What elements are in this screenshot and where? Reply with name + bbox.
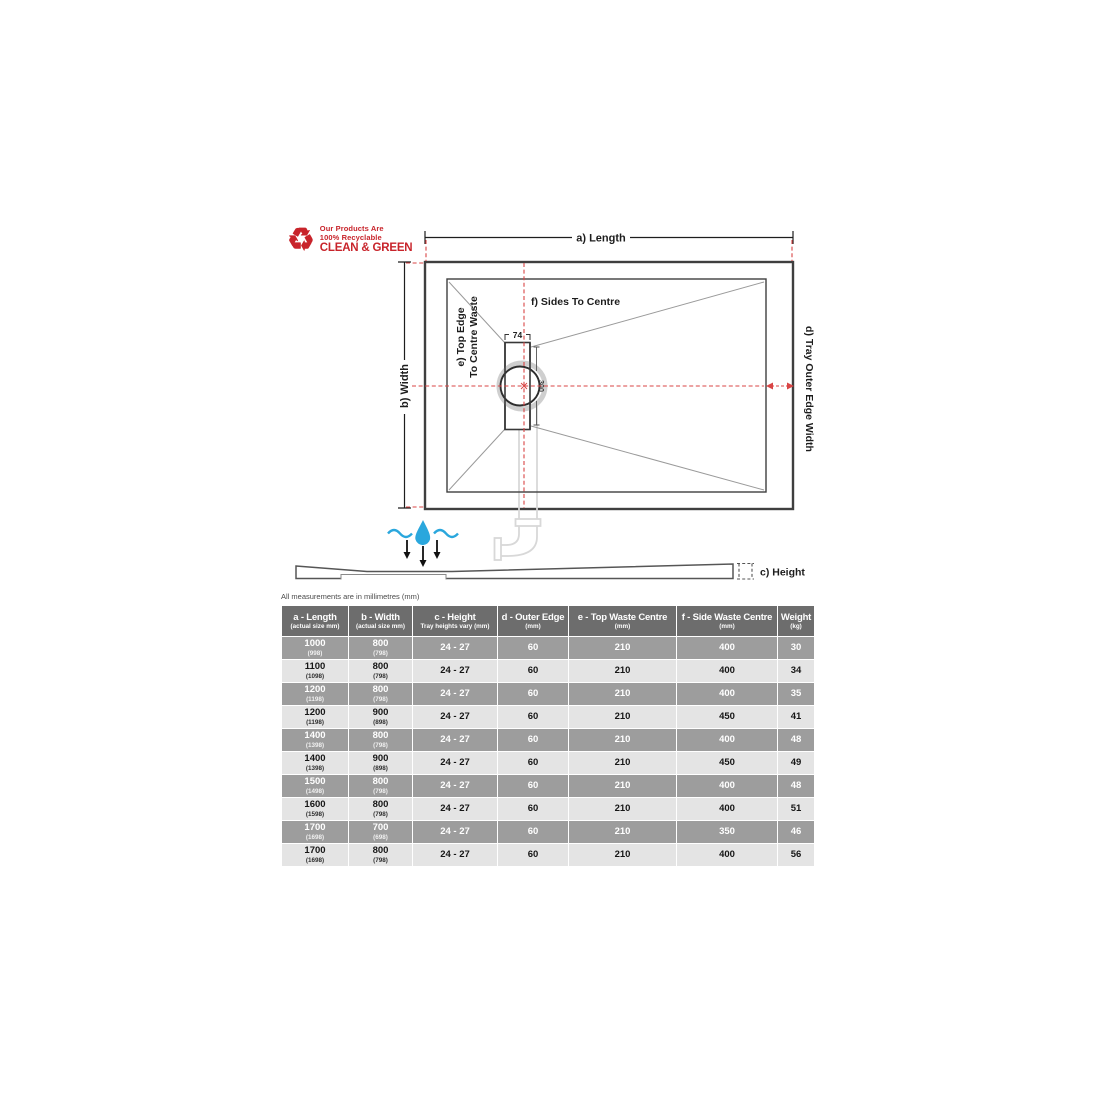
table-cell: 60 [498,844,569,867]
cell-value: 210 [569,735,676,746]
table-cell: 210 [569,683,677,706]
side-profile-view: c) Height [296,564,805,580]
cell-value: 450 [677,712,777,723]
column-header: d - Outer Edge(mm) [498,606,569,637]
cell-actual-size: (798) [349,673,412,681]
cell-value: 48 [778,735,814,746]
cell-value: 1100 [282,662,348,673]
cell-actual-size: (1498) [282,788,348,796]
column-header: c - HeightTray heights vary (mm) [413,606,498,637]
table-cell: 48 [778,775,815,798]
table-cell: 210 [569,706,677,729]
table-cell: 210 [569,729,677,752]
cell-value: 60 [498,850,568,861]
cell-value: 24 - 27 [413,758,497,769]
cell-actual-size: (1598) [282,811,348,819]
cell-value: 1700 [282,846,348,857]
table-cell: 24 - 27 [413,637,498,660]
cell-value: 24 - 27 [413,735,497,746]
cell-value: 60 [498,666,568,677]
table-cell: 1100(1098) [282,660,349,683]
cell-actual-size: (1698) [282,834,348,842]
table-cell: 60 [498,821,569,844]
cell-value: 210 [569,689,676,700]
cell-value: 210 [569,850,676,861]
cell-value: 210 [569,758,676,769]
column-header-sub: (mm) [569,623,676,631]
cell-actual-size: (898) [349,719,412,727]
cell-value: 210 [569,666,676,677]
height-bracket [737,564,754,580]
cell-actual-size: (798) [349,742,412,750]
table-cell: 1200(1198) [282,683,349,706]
table-cell: 48 [778,729,815,752]
cell-value: 24 - 27 [413,804,497,815]
column-header-label: b - Width [349,612,412,623]
wave-right-icon [434,530,458,537]
tray-technical-diagram: 74 300 a) Length b) Width [0,0,1100,600]
spec-sheet-page: ♻ Our Products Are 100% Recyclable CLEAN… [0,0,1100,1100]
table-cell: 1400(1398) [282,729,349,752]
table-cell: 450 [677,706,778,729]
column-header-sub: (actual size mm) [349,623,412,631]
cell-value: 24 - 27 [413,712,497,723]
table-row: 1700(1698)800(798)24 - 276021040056 [282,844,815,867]
cell-value: 60 [498,735,568,746]
cell-value: 49 [778,758,814,769]
cell-value: 51 [778,804,814,815]
table-cell: 1200(1198) [282,706,349,729]
table-cell: 900(898) [349,752,413,775]
cell-value: 400 [677,735,777,746]
cell-actual-size: (798) [349,788,412,796]
cell-value: 24 - 27 [413,850,497,861]
cell-actual-size: (798) [349,811,412,819]
table-cell: 210 [569,752,677,775]
cell-value: 400 [677,850,777,861]
cell-actual-size: (898) [349,765,412,773]
cell-actual-size: (1398) [282,742,348,750]
table-cell: 60 [498,798,569,821]
table-cell: 46 [778,821,815,844]
table-cell: 24 - 27 [413,729,498,752]
table-cell: 400 [677,844,778,867]
table-row: 1400(1398)800(798)24 - 276021040048 [282,729,815,752]
table-cell: 34 [778,660,815,683]
table-cell: 450 [677,752,778,775]
length-label: a) Length [576,233,626,245]
cell-actual-size: (798) [349,650,412,658]
cell-value: 60 [498,712,568,723]
table-cell: 24 - 27 [413,798,498,821]
cell-value: 400 [677,666,777,677]
spec-table-header-row: a - Length(actual size mm)b - Width(actu… [282,606,815,637]
table-cell: 24 - 27 [413,683,498,706]
cell-value: 900 [349,708,412,719]
table-cell: 400 [677,683,778,706]
cell-value: 24 - 27 [413,643,497,654]
cell-actual-size: (1098) [282,673,348,681]
cell-value: 60 [498,827,568,838]
table-cell: 800(798) [349,683,413,706]
table-cell: 35 [778,683,815,706]
cell-value: 48 [778,781,814,792]
column-header-sub: (mm) [677,623,777,631]
table-row: 1500(1498)800(798)24 - 276021040048 [282,775,815,798]
dimension-width: b) Width [398,262,411,508]
spec-table-head: a - Length(actual size mm)b - Width(actu… [282,606,815,637]
table-cell: 800(798) [349,637,413,660]
table-row: 1600(1598)800(798)24 - 276021040051 [282,798,815,821]
table-cell: 60 [498,752,569,775]
cell-value: 210 [569,827,676,838]
column-header-sub: (kg) [778,623,814,631]
table-row: 1700(1698)700(698)24 - 276021035046 [282,821,815,844]
column-header: f - Side Waste Centre(mm) [677,606,778,637]
table-cell: 800(798) [349,660,413,683]
water-drop-icon [415,520,430,545]
table-cell: 210 [569,775,677,798]
wave-left-icon [388,530,412,537]
table-cell: 24 - 27 [413,706,498,729]
cell-actual-size: (998) [282,650,348,658]
cell-value: 1000 [282,639,348,650]
column-header-sub: (actual size mm) [282,623,348,631]
cell-value: 24 - 27 [413,781,497,792]
table-cell: 60 [498,683,569,706]
table-cell: 400 [677,660,778,683]
table-cell: 51 [778,798,815,821]
table-cell: 400 [677,775,778,798]
cell-value: 1700 [282,823,348,834]
drain-recess [341,575,446,580]
tray-outer-edge-width-label: d) Tray Outer Edge Width [803,326,815,452]
cell-value: 60 [498,758,568,769]
table-cell: 800(798) [349,844,413,867]
water-flow-icon [388,520,458,567]
table-cell: 210 [569,660,677,683]
cell-value: 800 [349,685,412,696]
top-edge-label-line1: e) Top Edge [455,307,467,366]
cell-value: 900 [349,754,412,765]
table-cell: 1500(1498) [282,775,349,798]
table-cell: 400 [677,637,778,660]
sides-to-centre-label: f) Sides To Centre [531,296,620,308]
table-cell: 49 [778,752,815,775]
table-row: 1100(1098)800(798)24 - 276021040034 [282,660,815,683]
table-cell: 60 [498,729,569,752]
cell-value: 1500 [282,777,348,788]
cell-value: 1400 [282,731,348,742]
column-header-label: f - Side Waste Centre [677,612,777,623]
table-cell: 41 [778,706,815,729]
cell-value: 24 - 27 [413,666,497,677]
cell-value: 800 [349,846,412,857]
table-cell: 1700(1698) [282,821,349,844]
table-cell: 1000(998) [282,637,349,660]
table-cell: 800(798) [349,729,413,752]
cell-value: 34 [778,666,814,677]
table-row: 1400(1398)900(898)24 - 276021045049 [282,752,815,775]
table-cell: 210 [569,798,677,821]
cell-actual-size: (698) [349,834,412,842]
table-cell: 900(898) [349,706,413,729]
table-cell: 210 [569,821,677,844]
cell-value: 60 [498,804,568,815]
cell-value: 24 - 27 [413,689,497,700]
table-row: 1200(1198)900(898)24 - 276021045041 [282,706,815,729]
column-header: e - Top Waste Centre(mm) [569,606,677,637]
column-header: Weight(kg) [778,606,815,637]
table-cell: 1700(1698) [282,844,349,867]
table-cell: 210 [569,844,677,867]
dimension-length: a) Length [425,231,793,245]
column-header-label: Weight [778,612,814,623]
table-cell: 24 - 27 [413,775,498,798]
table-cell: 210 [569,637,677,660]
cell-value: 35 [778,689,814,700]
table-cell: 60 [498,637,569,660]
cell-value: 46 [778,827,814,838]
cell-value: 350 [677,827,777,838]
table-cell: 56 [778,844,815,867]
top-edge-label-line2: To Centre Waste [468,296,480,378]
cell-value: 400 [677,804,777,815]
column-header-label: e - Top Waste Centre [569,612,676,623]
spec-table-section: All measurements are in millimetres (mm)… [281,592,814,867]
cell-actual-size: (798) [349,696,412,704]
table-cell: 24 - 27 [413,821,498,844]
table-cell: 400 [677,729,778,752]
table-cell: 24 - 27 [413,752,498,775]
width-label: b) Width [399,364,411,408]
spec-table-body: 1000(998)800(798)24 - 2760210400301100(1… [282,637,815,867]
cell-value: 60 [498,689,568,700]
cell-value: 400 [677,689,777,700]
cell-value: 210 [569,781,676,792]
table-cell: 1400(1398) [282,752,349,775]
column-header-label: a - Length [282,612,348,623]
cell-value: 800 [349,731,412,742]
cell-value: 800 [349,639,412,650]
table-cell: 60 [498,660,569,683]
cell-value: 450 [677,758,777,769]
cell-value: 400 [677,643,777,654]
height-label: c) Height [760,567,805,579]
column-header-label: c - Height [413,612,497,623]
units-note: All measurements are in millimetres (mm) [281,592,814,601]
cell-value: 30 [778,643,814,654]
table-cell: 60 [498,706,569,729]
table-cell: 800(798) [349,775,413,798]
table-cell: 24 - 27 [413,660,498,683]
table-row: 1200(1198)800(798)24 - 276021040035 [282,683,815,706]
cell-value: 60 [498,781,568,792]
cell-actual-size: (1198) [282,696,348,704]
table-row: 1000(998)800(798)24 - 276021040030 [282,637,815,660]
cell-actual-size: (1398) [282,765,348,773]
table-cell: 1600(1598) [282,798,349,821]
cell-value: 400 [677,781,777,792]
cell-value: 41 [778,712,814,723]
cell-value: 700 [349,823,412,834]
cell-actual-size: (1698) [282,857,348,865]
column-header-sub: Tray heights vary (mm) [413,623,497,631]
cell-actual-size: (1198) [282,719,348,727]
cell-value: 24 - 27 [413,827,497,838]
cell-value: 1200 [282,685,348,696]
cell-value: 800 [349,800,412,811]
table-cell: 60 [498,775,569,798]
cell-value: 210 [569,643,676,654]
cell-value: 210 [569,804,676,815]
column-header-sub: (mm) [498,623,568,631]
cell-value: 1200 [282,708,348,719]
cell-value: 1400 [282,754,348,765]
table-cell: 30 [778,637,815,660]
column-header: b - Width(actual size mm) [349,606,413,637]
table-cell: 350 [677,821,778,844]
table-cell: 700(698) [349,821,413,844]
cell-value: 800 [349,777,412,788]
spec-table: a - Length(actual size mm)b - Width(actu… [281,605,815,867]
cell-value: 800 [349,662,412,673]
column-header-label: d - Outer Edge [498,612,568,623]
cell-actual-size: (798) [349,857,412,865]
table-cell: 24 - 27 [413,844,498,867]
dimension-74-label: 74 [513,330,523,340]
cell-value: 56 [778,850,814,861]
table-cell: 800(798) [349,798,413,821]
cell-value: 60 [498,643,568,654]
cell-value: 210 [569,712,676,723]
cell-value: 1600 [282,800,348,811]
table-cell: 400 [677,798,778,821]
column-header: a - Length(actual size mm) [282,606,349,637]
